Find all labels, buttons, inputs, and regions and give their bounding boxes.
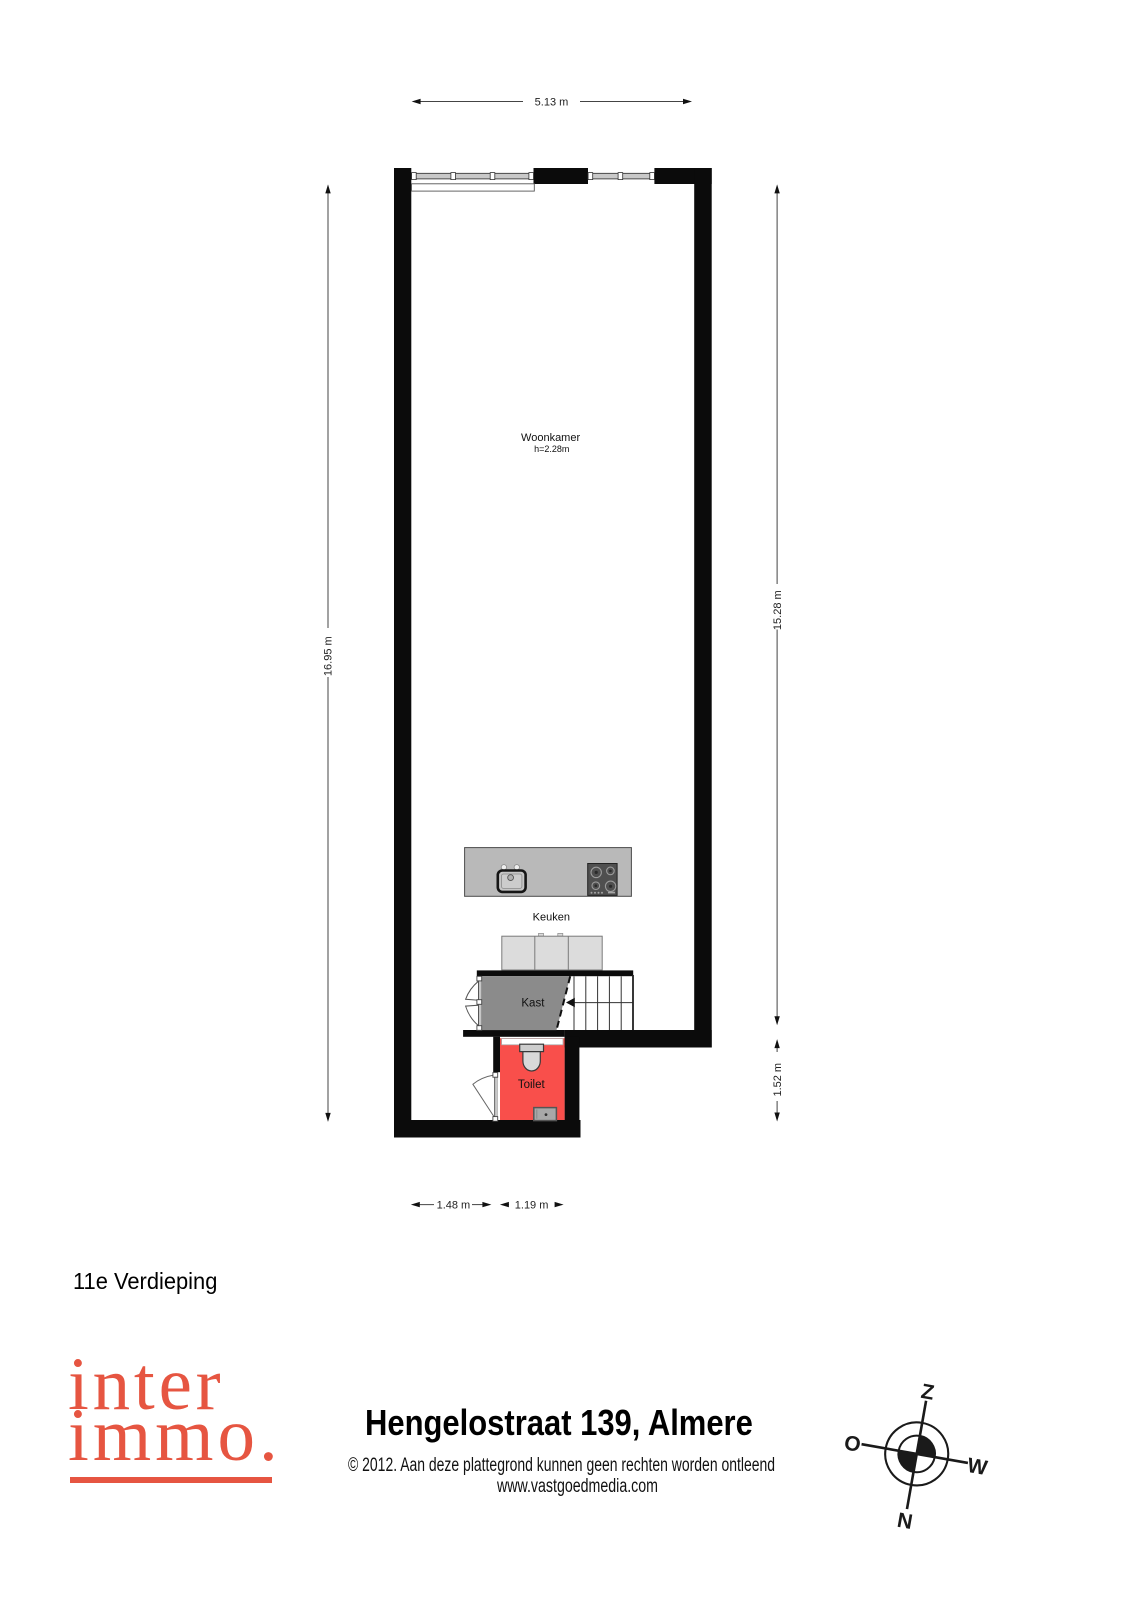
svg-text:N: N — [895, 1509, 914, 1534]
svg-text:h=2.28m: h=2.28m — [534, 444, 569, 454]
svg-text:Kast: Kast — [521, 997, 545, 1009]
svg-text:Toilet: Toilet — [518, 1079, 546, 1091]
svg-text:W: W — [966, 1454, 990, 1480]
svg-text:Z: Z — [919, 1380, 936, 1405]
svg-text:5.13 m: 5.13 m — [535, 96, 569, 108]
svg-text:Keuken: Keuken — [533, 911, 570, 923]
svg-text:1.48 m: 1.48 m — [437, 1199, 471, 1211]
svg-text:1.19 m: 1.19 m — [515, 1199, 549, 1211]
svg-text:O: O — [842, 1431, 862, 1456]
svg-text:15.28 m: 15.28 m — [772, 590, 784, 630]
svg-text:16.95 m: 16.95 m — [323, 636, 335, 676]
svg-text:1.52 m: 1.52 m — [772, 1063, 784, 1097]
svg-text:Woonkamer: Woonkamer — [521, 432, 580, 444]
